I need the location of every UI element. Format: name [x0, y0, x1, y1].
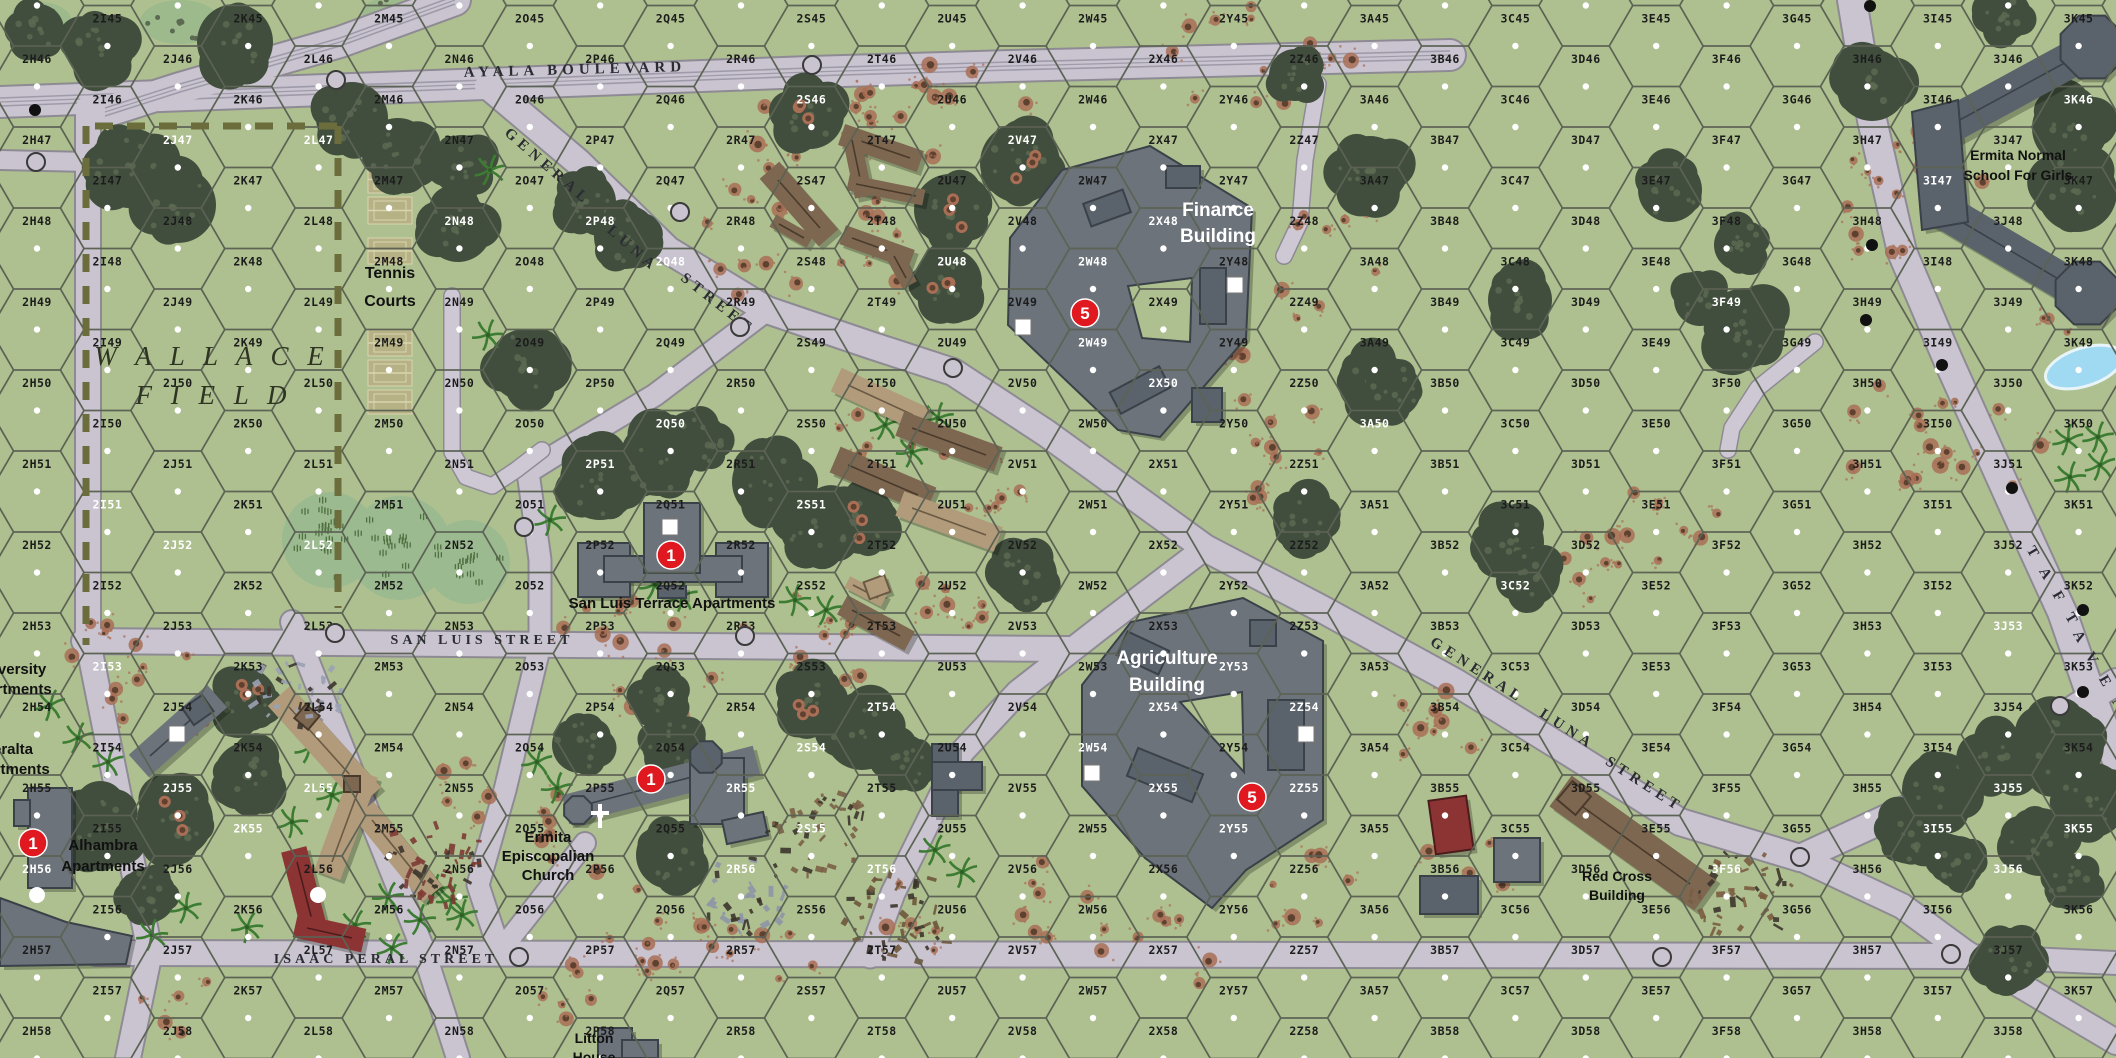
hex-label: 3G55 — [1782, 822, 1812, 836]
hex-center-dot — [1723, 83, 1729, 89]
hex-label: 2S48 — [797, 255, 827, 269]
hex-label: 3K45 — [2064, 12, 2094, 26]
hex-center-dot — [1723, 569, 1729, 575]
hex-center-dot — [1301, 2, 1307, 8]
manhole-icon — [327, 71, 345, 89]
hex-label: 2M45 — [374, 12, 404, 26]
hex-label: 3B46 — [1430, 52, 1460, 66]
hex-label: 2S51 — [797, 498, 827, 512]
hex-label: 2W54 — [1078, 741, 1108, 755]
hex-center-dot — [1653, 448, 1659, 454]
hex-center-dot — [104, 1015, 110, 1021]
manhole-icon — [27, 153, 45, 171]
hex-center-dot — [175, 2, 181, 8]
hex-center-dot — [738, 164, 744, 170]
building-name: Red Cross — [1582, 868, 1652, 884]
hex-center-dot — [175, 164, 181, 170]
hex-center-dot — [1583, 2, 1589, 8]
hex-center-dot — [315, 488, 321, 494]
hex-label: 2R47 — [726, 133, 756, 147]
hex-label: 3I52 — [1923, 579, 1953, 593]
hex-center-dot — [1935, 448, 1941, 454]
hex-label: 2N55 — [445, 781, 475, 795]
hex-label: 2I51 — [93, 498, 123, 512]
hex-label: 2N56 — [445, 862, 475, 876]
hex-label: 2Y56 — [1219, 903, 1249, 917]
hex-label: 2Z51 — [1289, 457, 1319, 471]
hex-label: 2I57 — [93, 984, 123, 998]
large-white-dot — [310, 887, 326, 903]
hex-center-dot — [315, 569, 321, 575]
hex-label: 2I47 — [93, 174, 123, 188]
hex-label: 2K45 — [233, 12, 263, 26]
hex-label: 3F51 — [1712, 457, 1742, 471]
hex-label: 3A55 — [1360, 822, 1390, 836]
hex-label: 2X54 — [1149, 700, 1179, 714]
hex-label: 2S49 — [797, 336, 827, 350]
hex-center-dot — [1160, 2, 1166, 8]
building-name: Building — [1129, 675, 1205, 696]
hex-center-dot — [315, 650, 321, 656]
hex-label: 2T50 — [867, 376, 897, 390]
hex-label: 3F47 — [1712, 133, 1742, 147]
hex-label: 2N58 — [445, 1024, 475, 1038]
hex-center-dot — [1583, 326, 1589, 332]
hex-label: 2W47 — [1078, 174, 1108, 188]
hex-label: 3J57 — [1993, 943, 2023, 957]
hex-label: 3I45 — [1923, 12, 1953, 26]
hex-center-dot — [2005, 569, 2011, 575]
hex-center-dot — [456, 731, 462, 737]
hex-label: 2L49 — [304, 295, 334, 309]
hex-label: 2L55 — [304, 781, 334, 795]
hex-label: 2M55 — [374, 822, 404, 836]
red-number-marker[interactable]: 5 — [1238, 783, 1266, 811]
hex-center-dot — [2075, 43, 2081, 49]
hex-label: 2I54 — [93, 741, 123, 755]
hex-label: 2W50 — [1078, 417, 1108, 431]
hex-center-dot — [1371, 367, 1377, 373]
hex-label: 2U53 — [937, 660, 967, 674]
building-name: Alhambra — [68, 837, 138, 854]
hex-label: 2H49 — [22, 295, 52, 309]
hex-label: 3G47 — [1782, 174, 1812, 188]
hex-label: 3E48 — [1641, 255, 1671, 269]
hex-center-dot — [808, 1015, 814, 1021]
hex-center-dot — [315, 2, 321, 8]
hex-center-dot — [1442, 893, 1448, 899]
hex-center-dot — [1160, 83, 1166, 89]
hex-center-dot — [667, 934, 673, 940]
hex-center-dot — [2075, 772, 2081, 778]
manhole-icon — [803, 56, 821, 74]
hex-center-dot — [879, 812, 885, 818]
objective-square-marker[interactable] — [1298, 726, 1314, 742]
hex-label: 2O50 — [515, 417, 545, 431]
hex-label: 2X57 — [1149, 943, 1179, 957]
hex-center-dot — [1723, 164, 1729, 170]
hex-center-dot — [1794, 772, 1800, 778]
hex-center-dot — [667, 691, 673, 697]
hex-label: 2N54 — [445, 700, 475, 714]
hex-label: 2U51 — [937, 498, 967, 512]
hex-center-dot — [315, 731, 321, 737]
hex-label: 3I47 — [1923, 174, 1953, 188]
hex-label: 2O46 — [515, 93, 545, 107]
hex-label: 3F56 — [1712, 862, 1742, 876]
hex-center-dot — [1512, 43, 1518, 49]
hex-center-dot — [104, 691, 110, 697]
hex-label: 2Z50 — [1289, 376, 1319, 390]
hex-label: 3A48 — [1360, 255, 1390, 269]
hex-center-dot — [34, 731, 40, 737]
sewer-dot-icon — [1936, 359, 1948, 371]
hex-label: 2M51 — [374, 498, 404, 512]
hex-center-dot — [1794, 610, 1800, 616]
hex-center-dot — [2075, 367, 2081, 373]
hex-label: 2P54 — [585, 700, 615, 714]
hex-center-dot — [667, 853, 673, 859]
hex-center-dot — [1160, 569, 1166, 575]
hex-center-dot — [2005, 812, 2011, 818]
hex-label: 3A57 — [1360, 984, 1390, 998]
red-number-marker[interactable]: 1 — [19, 829, 47, 857]
hex-center-dot — [245, 205, 251, 211]
hex-center-dot — [1231, 1015, 1237, 1021]
manhole-icon — [326, 624, 344, 642]
hex-center-dot — [949, 772, 955, 778]
hex-center-dot — [1090, 124, 1096, 130]
hex-center-dot — [34, 407, 40, 413]
hex-center-dot — [1090, 448, 1096, 454]
hex-center-dot — [1512, 610, 1518, 616]
hex-label: 2Q49 — [656, 336, 686, 350]
hex-label: 2O56 — [515, 903, 545, 917]
hex-label: 3B48 — [1430, 214, 1460, 228]
hex-center-dot — [34, 2, 40, 8]
hex-label: 2Y45 — [1219, 12, 1249, 26]
hex-center-dot — [245, 691, 251, 697]
hex-center-dot — [2005, 245, 2011, 251]
hex-center-dot — [386, 205, 392, 211]
hex-label: 2J47 — [163, 133, 193, 147]
hex-label: 2V54 — [1008, 700, 1038, 714]
hex-center-dot — [1231, 934, 1237, 940]
hex-center-dot — [1160, 893, 1166, 899]
hex-center-dot — [1723, 974, 1729, 980]
area-name: Courts — [364, 293, 416, 310]
hex-center-dot — [1442, 164, 1448, 170]
hex-center-dot — [1160, 164, 1166, 170]
hex-label: 2Z47 — [1289, 133, 1319, 147]
hex-center-dot — [2075, 286, 2081, 292]
hex-label: 3D48 — [1571, 214, 1601, 228]
hex-center-dot — [1583, 650, 1589, 656]
hex-label: 2Z48 — [1289, 214, 1319, 228]
hex-label: 2V55 — [1008, 781, 1038, 795]
hex-center-dot — [1512, 124, 1518, 130]
hex-label: 3D49 — [1571, 295, 1601, 309]
hex-label: 2K48 — [233, 255, 263, 269]
hex-label: 2K51 — [233, 498, 263, 512]
hex-center-dot — [1723, 245, 1729, 251]
hex-label: 2I50 — [93, 417, 123, 431]
hex-label: 2X51 — [1149, 457, 1179, 471]
hex-label: 2Z57 — [1289, 943, 1319, 957]
hex-center-dot — [315, 245, 321, 251]
sewer-dot-icon — [29, 104, 41, 116]
hex-label: 2V57 — [1008, 943, 1038, 957]
hex-label: 3C51 — [1501, 498, 1531, 512]
hex-label: 2Q57 — [656, 984, 686, 998]
hex-center-dot — [1231, 43, 1237, 49]
hex-center-dot — [456, 164, 462, 170]
hex-label: 2X50 — [1149, 376, 1179, 390]
hex-center-dot — [1653, 691, 1659, 697]
hex-center-dot — [738, 569, 744, 575]
hex-label: 3H55 — [1853, 781, 1883, 795]
hex-center-dot — [1371, 691, 1377, 697]
hex-center-dot — [1583, 974, 1589, 980]
hex-label: 2K57 — [233, 984, 263, 998]
hex-label: 3E56 — [1641, 903, 1671, 917]
hex-center-dot — [386, 286, 392, 292]
hex-center-dot — [1301, 326, 1307, 332]
hex-label: 2W45 — [1078, 12, 1108, 26]
hex-center-dot — [104, 610, 110, 616]
hex-label: 2K46 — [233, 93, 263, 107]
hex-center-dot — [1935, 772, 1941, 778]
hex-center-dot — [1090, 691, 1096, 697]
hex-center-dot — [104, 43, 110, 49]
street-name: SAN LUIS STREET — [391, 633, 574, 648]
hex-label: 3G45 — [1782, 12, 1812, 26]
hex-center-dot — [808, 448, 814, 454]
hex-center-dot — [1723, 650, 1729, 656]
hex-label: 3G54 — [1782, 741, 1812, 755]
hex-label: 2J46 — [163, 52, 193, 66]
building-name: Apartments — [61, 858, 144, 875]
hex-label: 2K53 — [233, 660, 263, 674]
hex-label: 2W51 — [1078, 498, 1108, 512]
hex-label: 2P52 — [585, 538, 615, 552]
hex-label: 3J54 — [1993, 700, 2023, 714]
hex-label: 3K56 — [2064, 903, 2094, 917]
hex-label: 3F50 — [1712, 376, 1742, 390]
hex-center-dot — [1090, 529, 1096, 535]
objective-square-marker[interactable] — [1084, 765, 1100, 781]
hex-label: 3I46 — [1923, 93, 1953, 107]
hex-label: 2H56 — [22, 862, 52, 876]
hex-center-dot — [949, 448, 955, 454]
hex-center-dot — [1794, 367, 1800, 373]
hex-label: 2X52 — [1149, 538, 1179, 552]
objective-square-marker[interactable] — [1227, 277, 1243, 293]
large-white-dot — [29, 887, 45, 903]
hex-center-dot — [879, 569, 885, 575]
hex-center-dot — [2005, 407, 2011, 413]
hex-label: 3E45 — [1641, 12, 1671, 26]
red-number-marker[interactable]: 5 — [1071, 299, 1099, 327]
hex-center-dot — [597, 245, 603, 251]
hex-label: 3D54 — [1571, 700, 1601, 714]
hex-label: 2X48 — [1149, 214, 1179, 228]
hex-label: 2W57 — [1078, 984, 1108, 998]
hex-label: 2R52 — [726, 538, 756, 552]
hex-center-dot — [175, 893, 181, 899]
hex-label: 2M52 — [374, 579, 404, 593]
area-name: F I E L D — [134, 380, 292, 410]
hex-label: 2T56 — [867, 862, 897, 876]
hex-label: 3G56 — [1782, 903, 1812, 917]
hex-label: 2I52 — [93, 579, 123, 593]
objective-square-marker[interactable] — [169, 726, 185, 742]
hex-label: 2L50 — [304, 376, 334, 390]
objective-square-marker[interactable] — [662, 519, 678, 535]
hex-center-dot — [104, 529, 110, 535]
hex-label: 2Y52 — [1219, 579, 1249, 593]
hex-label: 3G50 — [1782, 417, 1812, 431]
hex-label: 3C57 — [1501, 984, 1531, 998]
hex-label: 2Y48 — [1219, 255, 1249, 269]
hex-center-dot — [1583, 164, 1589, 170]
hex-label: 2J49 — [163, 295, 193, 309]
hex-label: 3I51 — [1923, 498, 1953, 512]
hex-center-dot — [245, 43, 251, 49]
hex-label: 3B54 — [1430, 700, 1460, 714]
hex-label: 2O47 — [515, 174, 545, 188]
hex-label: 3J58 — [1993, 1024, 2023, 1038]
hex-center-dot — [1653, 934, 1659, 940]
hex-center-dot — [1864, 893, 1870, 899]
hex-center-dot — [738, 407, 744, 413]
hex-center-dot — [1794, 124, 1800, 130]
hex-center-dot — [527, 286, 533, 292]
red-number-marker[interactable]: 1 — [637, 765, 665, 793]
hex-label: 2O51 — [515, 498, 545, 512]
hex-label: 3B55 — [1430, 781, 1460, 795]
hex-label: 3J55 — [1993, 781, 2023, 795]
hex-center-dot — [949, 286, 955, 292]
hex-label: 2J54 — [163, 700, 193, 714]
hex-center-dot — [2075, 205, 2081, 211]
hex-label: 3C56 — [1501, 903, 1531, 917]
hex-label: 2P47 — [585, 133, 615, 147]
hex-label: 3A46 — [1360, 93, 1390, 107]
hex-center-dot — [1653, 1015, 1659, 1021]
svg-text:1: 1 — [666, 546, 675, 565]
hex-center-dot — [1442, 812, 1448, 818]
hex-label: 3J52 — [1993, 538, 2023, 552]
red-number-marker[interactable]: 1 — [657, 541, 685, 569]
hex-center-dot — [527, 610, 533, 616]
hex-wargame-map: 2H452H462H472H482H492H502H512H522H532H54… — [0, 0, 2116, 1058]
hex-center-dot — [527, 691, 533, 697]
hex-label: 3F48 — [1712, 214, 1742, 228]
hex-label: 3H52 — [1853, 538, 1883, 552]
hex-center-dot — [1653, 529, 1659, 535]
hex-label: 2U54 — [937, 741, 967, 755]
hex-label: 2K56 — [233, 903, 263, 917]
hex-center-dot — [949, 43, 955, 49]
hex-center-dot — [386, 529, 392, 535]
hex-label: 2Z49 — [1289, 295, 1319, 309]
hex-center-dot — [949, 610, 955, 616]
hex-center-dot — [808, 124, 814, 130]
hex-label: 3F55 — [1712, 781, 1742, 795]
hex-label: 2Q51 — [656, 498, 686, 512]
hex-label: 3B50 — [1430, 376, 1460, 390]
hex-label: 3G49 — [1782, 336, 1812, 350]
hex-center-dot — [879, 488, 885, 494]
hex-label: 2V49 — [1008, 295, 1038, 309]
hex-center-dot — [2005, 731, 2011, 737]
hex-label: 2Q50 — [656, 417, 686, 431]
hex-label: 2R51 — [726, 457, 756, 471]
hex-center-dot — [1653, 772, 1659, 778]
hex-label: 2X47 — [1149, 133, 1179, 147]
hex-center-dot — [1019, 488, 1025, 494]
hex-center-dot — [1442, 2, 1448, 8]
hex-label: 2S53 — [797, 660, 827, 674]
hex-label: 2W48 — [1078, 255, 1108, 269]
hex-center-dot — [527, 934, 533, 940]
hex-label: 2P50 — [585, 376, 615, 390]
manhole-icon — [944, 359, 962, 377]
hex-center-dot — [597, 974, 603, 980]
hex-label: 2N52 — [445, 538, 475, 552]
hex-label: 2P49 — [585, 295, 615, 309]
hex-center-dot — [315, 326, 321, 332]
hex-center-dot — [1512, 1015, 1518, 1021]
hex-center-dot — [245, 1015, 251, 1021]
hex-label: 2T47 — [867, 133, 897, 147]
hex-center-dot — [1371, 610, 1377, 616]
hex-center-dot — [386, 934, 392, 940]
building-3C55 — [1494, 838, 1544, 886]
hex-label: 3A45 — [1360, 12, 1390, 26]
hex-label: 3D58 — [1571, 1024, 1601, 1038]
hex-center-dot — [597, 83, 603, 89]
hex-label: 3K55 — [2064, 822, 2094, 836]
hex-label: 2Y46 — [1219, 93, 1249, 107]
hex-center-dot — [1794, 448, 1800, 454]
hex-label: 2R46 — [726, 52, 756, 66]
hex-center-dot — [879, 164, 885, 170]
hex-center-dot — [808, 853, 814, 859]
area-name: Tennis — [365, 265, 415, 282]
hex-label: 3F46 — [1712, 52, 1742, 66]
hex-center-dot — [1371, 1015, 1377, 1021]
hex-center-dot — [456, 650, 462, 656]
hex-center-dot — [456, 893, 462, 899]
hex-center-dot — [738, 83, 744, 89]
hex-label: 3G48 — [1782, 255, 1812, 269]
sewer-dot-icon — [2006, 482, 2018, 494]
hex-center-dot — [527, 124, 533, 130]
hex-label: 3E51 — [1641, 498, 1671, 512]
hex-label: 2U45 — [937, 12, 967, 26]
hex-label: 2X49 — [1149, 295, 1179, 309]
hex-center-dot — [1935, 205, 1941, 211]
hex-label: 2P57 — [585, 943, 615, 957]
hex-center-dot — [245, 286, 251, 292]
road — [84, 641, 1068, 649]
building-3B55 — [1428, 796, 1477, 859]
hex-center-dot — [1019, 164, 1025, 170]
hex-label: 2M53 — [374, 660, 404, 674]
objective-square-marker[interactable] — [1015, 319, 1031, 335]
